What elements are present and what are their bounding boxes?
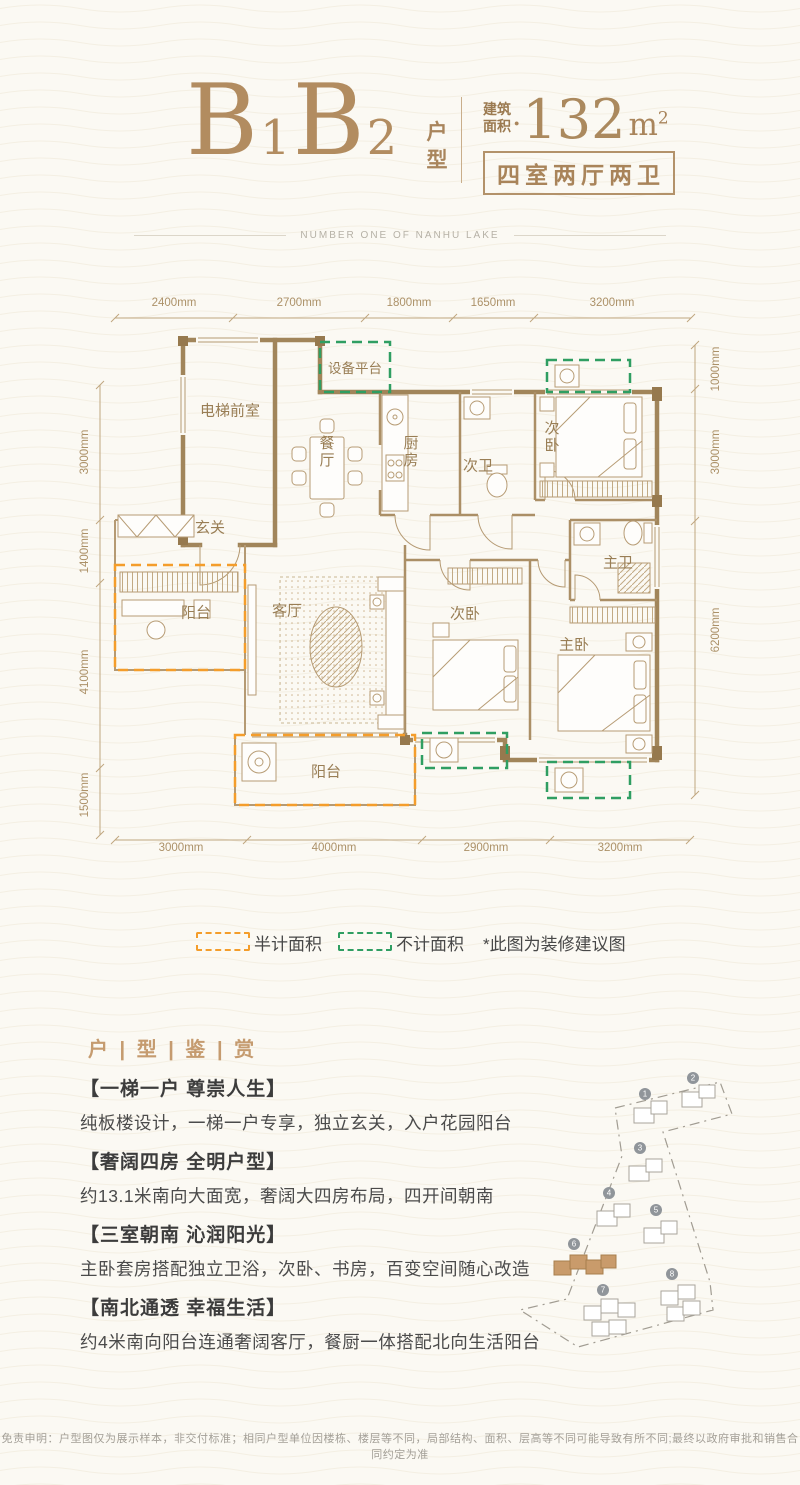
section-title: 户 | 型 | 鉴 | 赏 (88, 1033, 257, 1062)
siteplan-building-6-highlighted: 6 (554, 1238, 616, 1275)
svg-text:2: 2 (691, 1074, 696, 1083)
legend-decor-note: *此图为装修建议图 (483, 930, 626, 955)
dim-top-1: 2400mm (152, 297, 197, 309)
room-label-elevator-lobby: 电梯前室 (200, 400, 260, 421)
siteplan-building-8: 8 (661, 1268, 700, 1321)
feature-block-4: 【南北通透 幸福生活】 约4米南向阳台连通奢阔客厅，餐厨一体搭配北向生活阳台 (80, 1293, 558, 1354)
dim-bottom-4: 3200mm (598, 842, 643, 854)
room-label-kitchen: 厨房 (403, 435, 420, 470)
room-label-bedroom3: 次卧 (450, 603, 480, 624)
built-area-label: 建筑面积 (483, 101, 511, 144)
siteplan-svg: 1 2 3 4 5 (510, 1070, 790, 1370)
dim-left-3: 4100mm (79, 650, 91, 695)
plan-name-letter: B (293, 76, 365, 166)
svg-text:3: 3 (638, 1144, 643, 1153)
header-divider (461, 97, 462, 183)
plan-name-sub: 1 (258, 114, 293, 166)
svg-text:1: 1 (643, 1090, 648, 1099)
room-label-bath2: 次卫 (463, 455, 493, 476)
svg-text:7: 7 (601, 1286, 606, 1295)
dim-right-1: 1000mm (710, 347, 722, 392)
feature-body: 主卧套房搭配独立卫浴，次卧、书房，百变空间随心改造 (80, 1256, 558, 1281)
feature-title: 【奢阔四房 全明户型】 (80, 1147, 558, 1174)
plan-type-vertical-label: 户型 (425, 119, 449, 176)
feature-title: 【一梯一户 尊崇人生】 (80, 1074, 558, 1101)
siteplan-building-3: 3 (629, 1142, 662, 1181)
feature-title: 【南北通透 幸福生活】 (80, 1293, 558, 1320)
dim-top-2: 2700mm (277, 297, 322, 309)
legend-excluded-area-swatch (338, 932, 392, 951)
poster-page: B 1 B 2 户型 建筑面积 ● 132 m2 四室两厅两卫 NUMBER O… (0, 0, 800, 1485)
plan-name-sub: 2 (365, 114, 400, 166)
feature-block-3: 【三室朝南 沁润阳光】 主卧套房搭配独立卫浴，次卧、书房，百变空间随心改造 (80, 1220, 558, 1281)
svg-text:5: 5 (654, 1206, 659, 1215)
legend-excluded-area-label: 不计面积 (396, 930, 464, 955)
feature-title: 【三室朝南 沁润阳光】 (80, 1220, 558, 1247)
floorplan-svg (50, 285, 750, 885)
tagline-rule-left (134, 235, 286, 236)
svg-text:8: 8 (670, 1270, 675, 1279)
dim-bottom-2: 4000mm (312, 842, 357, 854)
tagline: NUMBER ONE OF NANHU LAKE (0, 230, 800, 241)
legend-half-area-swatch (196, 932, 250, 951)
dim-left-1: 3000mm (79, 430, 91, 475)
svg-text:4: 4 (607, 1189, 612, 1198)
room-label-living: 客厅 (272, 600, 302, 621)
tagline-rule-right (514, 235, 666, 236)
tagline-text: NUMBER ONE OF NANHU LAKE (300, 230, 499, 241)
siteplan-building-2: 2 (682, 1072, 715, 1107)
siteplan-building-5: 5 (644, 1204, 677, 1243)
feature-block-2: 【奢阔四房 全明户型】 约13.1米南向大面宽，奢阔大四房布局，四开间朝南 (80, 1147, 558, 1208)
dim-bottom-1: 3000mm (159, 842, 204, 854)
feature-body: 纯板楼设计，一梯一户专享，独立玄关，入户花园阳台 (80, 1110, 558, 1135)
room-count-badge: 四室两厅两卫 (483, 151, 675, 195)
room-label-equipment-platform: 设备平台 (328, 357, 382, 377)
dim-top-4: 1650mm (471, 297, 516, 309)
plan-name: B 1 B 2 (186, 76, 399, 166)
svg-text:6: 6 (572, 1240, 577, 1249)
disclaimer: 免责申明：户型图仅为展示样本，非交付标准；相同户型单位因楼栋、楼层等不同，局部结… (0, 1430, 800, 1462)
plan-name-letter: B (186, 76, 258, 166)
room-label-master-bath: 主卫 (603, 552, 633, 573)
room-label-bedroom2: 次卧 (544, 420, 561, 455)
built-area-unit: m2 (626, 110, 669, 144)
room-label-foyer: 玄关 (195, 517, 225, 538)
dim-bottom-3: 2900mm (464, 842, 509, 854)
room-label-entry-balcony: 阳台 (181, 602, 211, 623)
built-area: 建筑面积 ● 132 m2 (483, 96, 669, 144)
dim-right-2: 3000mm (710, 430, 722, 475)
room-label-master-bedroom: 主卧 (559, 634, 589, 655)
siteplan-building-1: 1 (634, 1088, 667, 1123)
feature-body: 约13.1米南向大面宽，奢阔大四房布局，四开间朝南 (80, 1183, 558, 1208)
dim-left-2: 1400mm (79, 529, 91, 574)
room-label-south-balcony: 阳台 (311, 761, 341, 782)
feature-body: 约4米南向阳台连通奢阔客厅，餐厨一体搭配北向生活阳台 (80, 1329, 558, 1354)
siteplan-building-7: 7 (584, 1284, 635, 1336)
room-label-dining: 餐厅 (319, 435, 336, 470)
dim-top-3: 1800mm (387, 297, 432, 309)
legend-half-area-label: 半计面积 (254, 930, 322, 955)
furniture (118, 365, 655, 792)
dim-right-3: 6200mm (710, 608, 722, 653)
dim-top-5: 3200mm (590, 297, 635, 309)
dot-icon: ● (511, 118, 522, 144)
built-area-value: 132 (522, 96, 625, 144)
feature-block-1: 【一梯一户 尊崇人生】 纯板楼设计，一梯一户专享，独立玄关，入户花园阳台 (80, 1074, 558, 1135)
dim-left-4: 1500mm (79, 773, 91, 818)
